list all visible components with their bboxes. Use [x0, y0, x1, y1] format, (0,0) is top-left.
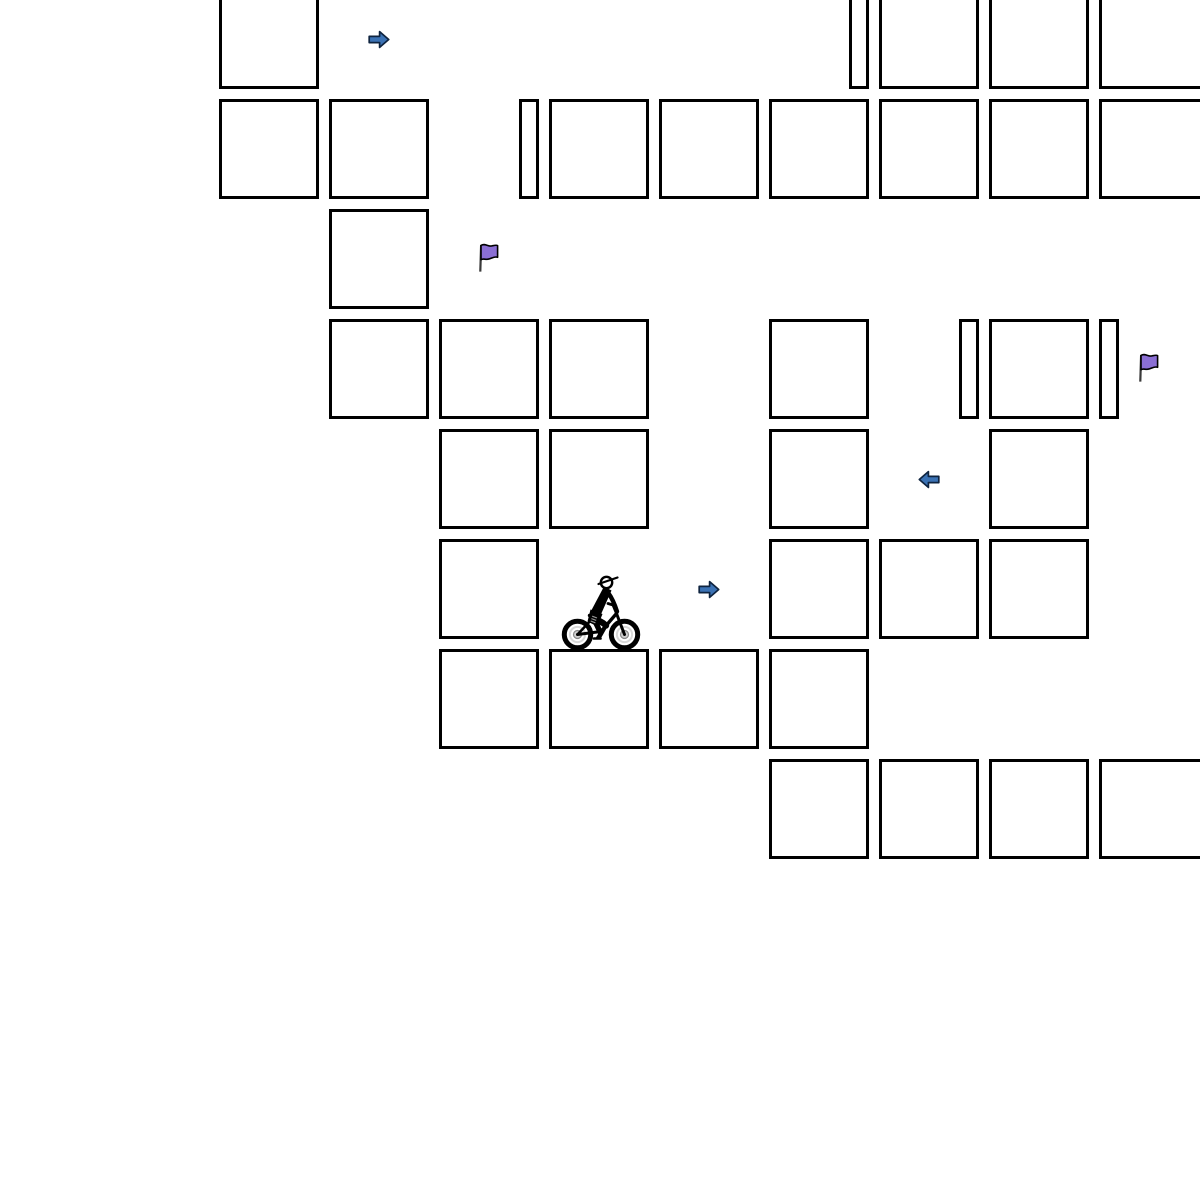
board-cell: [769, 649, 869, 749]
board-cell-narrow: [519, 99, 539, 199]
board-cell: [1099, 0, 1200, 89]
board-cell-narrow: [1099, 319, 1119, 419]
board-cell: [549, 649, 649, 749]
board-cell: [1099, 759, 1200, 859]
board-cell: [769, 429, 869, 529]
direction-arrow-left: [918, 470, 940, 489]
board-cell: [989, 539, 1089, 639]
arrow-left-icon: [918, 470, 940, 489]
arrow-right-icon: [368, 30, 390, 49]
board-cell-narrow: [959, 319, 979, 419]
goal-flag: [1138, 352, 1161, 383]
cyclist-icon: [561, 572, 641, 652]
board-cell: [549, 319, 649, 419]
goal-flag: [478, 242, 501, 273]
board-cell: [329, 209, 429, 309]
game-board[interactable]: [0, 0, 1200, 1200]
board-cell: [879, 0, 979, 89]
direction-arrow-right: [698, 580, 720, 599]
board-cell: [329, 99, 429, 199]
board-cell: [989, 319, 1089, 419]
board-cell: [659, 649, 759, 749]
board-cell: [549, 429, 649, 529]
board-cell: [219, 99, 319, 199]
board-cell: [879, 99, 979, 199]
board-cell: [439, 429, 539, 529]
board-cell: [439, 539, 539, 639]
board-cell: [329, 319, 429, 419]
board-cell: [219, 0, 319, 89]
board-cell: [439, 649, 539, 749]
board-cell: [549, 99, 649, 199]
board-cell: [989, 429, 1089, 529]
board-cell: [769, 539, 869, 639]
board-cell: [1099, 99, 1200, 199]
board-cell-narrow: [849, 0, 869, 89]
direction-arrow-right: [368, 30, 390, 49]
flag-icon: [478, 242, 501, 273]
board-cell: [439, 319, 539, 419]
board-cell: [989, 99, 1089, 199]
flag-icon: [1138, 352, 1161, 383]
board-cell: [769, 319, 869, 419]
board-cell: [879, 539, 979, 639]
board-cell: [769, 759, 869, 859]
board-cell: [989, 0, 1089, 89]
board-cell: [989, 759, 1089, 859]
board-cell: [879, 759, 979, 859]
arrow-right-icon: [698, 580, 720, 599]
board-cell: [769, 99, 869, 199]
board-cell: [659, 99, 759, 199]
player-cyclist: [561, 572, 641, 652]
